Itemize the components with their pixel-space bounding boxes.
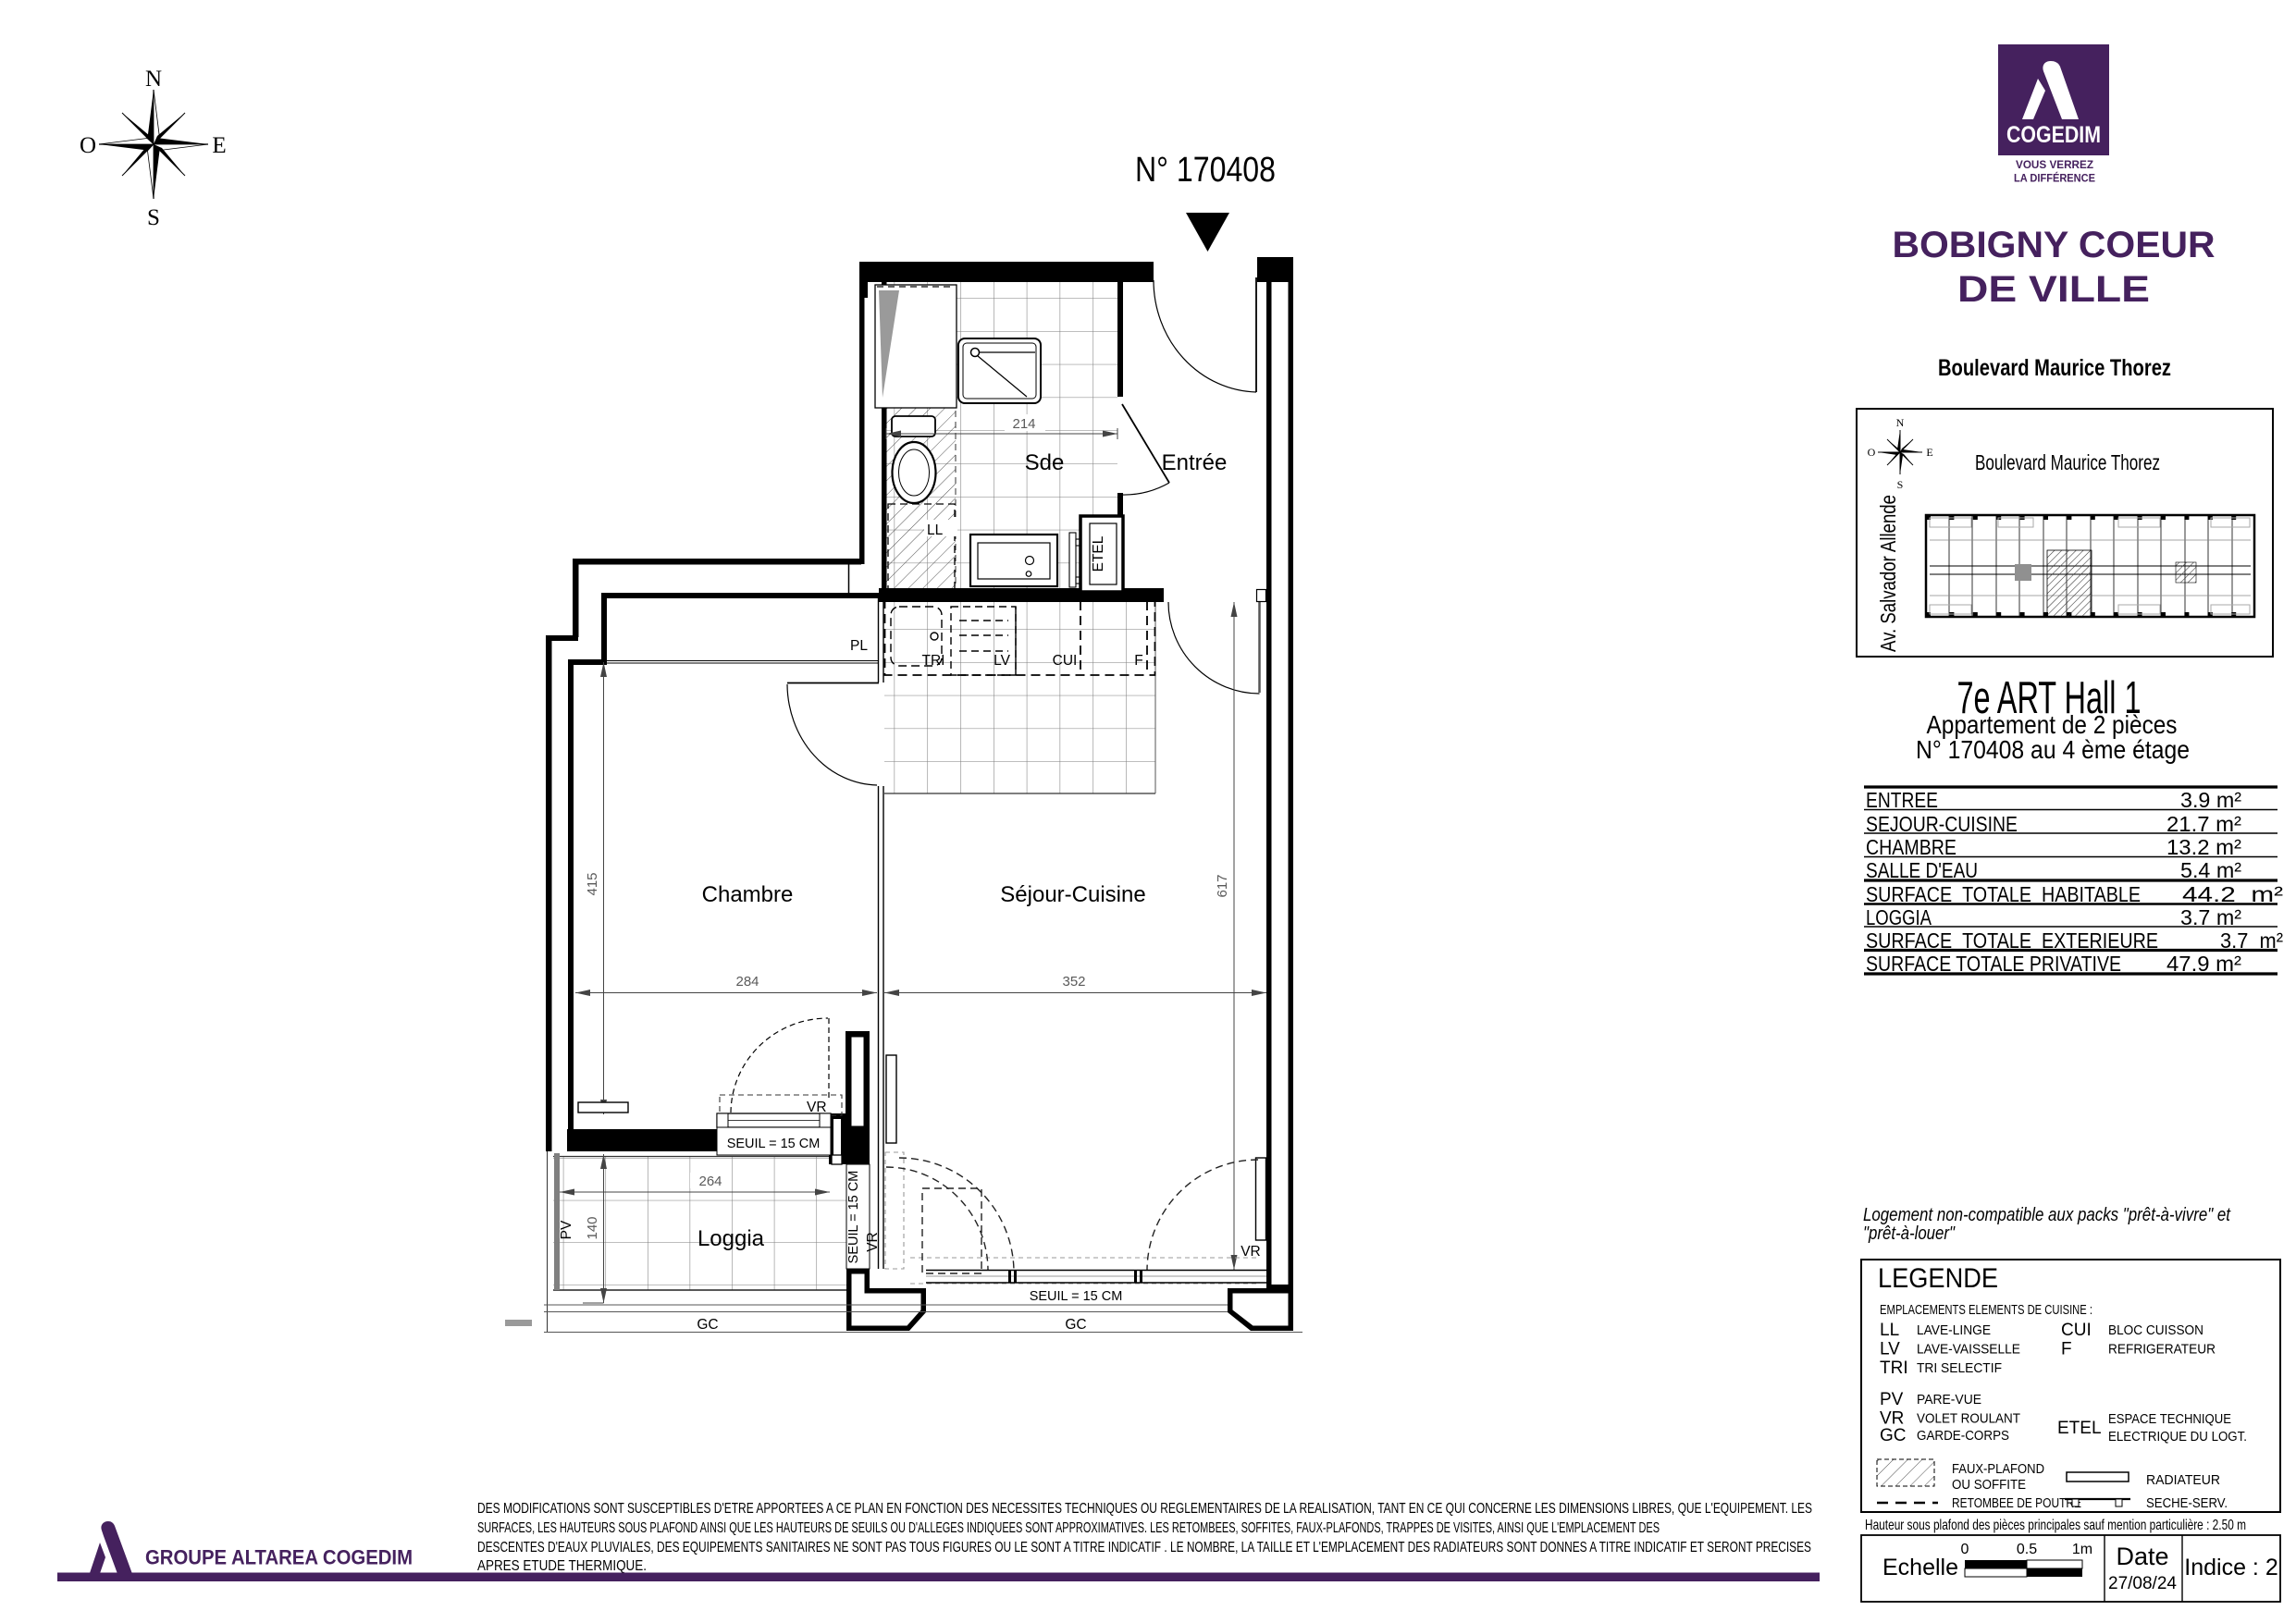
- svg-text:F: F: [2061, 1340, 2072, 1359]
- svg-text:27/08/24: 27/08/24: [2108, 1574, 2177, 1593]
- svg-text:LV: LV: [994, 653, 1010, 669]
- svg-text:EMPLACEMENTS ELEMENTS DE CUISI: EMPLACEMENTS ELEMENTS DE CUISINE :: [1880, 1302, 2092, 1318]
- svg-text:Date: Date: [2116, 1543, 2168, 1570]
- svg-text:Boulevard Maurice Thorez: Boulevard Maurice Thorez: [1938, 355, 2171, 381]
- svg-text:Indice : 2: Indice : 2: [2184, 1555, 2277, 1580]
- svg-text:VOLET ROULANT: VOLET ROULANT: [1917, 1412, 2020, 1427]
- svg-text:S: S: [1897, 478, 1904, 491]
- svg-text:LEGENDE: LEGENDE: [1878, 1263, 1998, 1294]
- svg-text:VOUS VERREZ: VOUS VERREZ: [2016, 160, 2093, 171]
- svg-text:REFRIGERATEUR: REFRIGERATEUR: [2108, 1343, 2216, 1358]
- svg-text:21.7 m²: 21.7 m²: [2166, 812, 2241, 836]
- svg-text:LL: LL: [927, 523, 944, 538]
- svg-text:OU SOFFITE: OU SOFFITE: [1952, 1478, 2026, 1493]
- svg-text:PV: PV: [559, 1220, 574, 1239]
- svg-text:Chambre: Chambre: [702, 882, 794, 907]
- svg-text:RETOMBEE DE POUTRE: RETOMBEE DE POUTRE: [1952, 1496, 2081, 1511]
- svg-text:GC: GC: [1065, 1317, 1086, 1333]
- svg-text:13.2 m²: 13.2 m²: [2166, 835, 2241, 859]
- svg-text:S: S: [147, 205, 160, 230]
- svg-text:DE VILLE: DE VILLE: [1957, 269, 2150, 310]
- svg-text:GC: GC: [1880, 1426, 1907, 1445]
- svg-text:LAVE-LINGE: LAVE-LINGE: [1917, 1323, 1991, 1338]
- svg-text:214: 214: [1012, 416, 1035, 432]
- svg-text:COGEDIM: COGEDIM: [2006, 122, 2101, 148]
- svg-text:ETEL: ETEL: [2057, 1419, 2102, 1438]
- svg-text:ENTREE: ENTREE: [1866, 788, 1938, 812]
- svg-text:F: F: [1134, 653, 1142, 669]
- svg-text:SURFACE TOTALE EXTERIEURE: SURFACE TOTALE EXTERIEURE: [1866, 928, 2158, 953]
- svg-text:264: 264: [698, 1174, 722, 1189]
- svg-text:TRI: TRI: [922, 653, 945, 669]
- svg-text:ETEL: ETEL: [1091, 535, 1106, 572]
- svg-text:Séjour-Cuisine: Séjour-Cuisine: [1000, 882, 1145, 907]
- svg-text:SECHE-SERV.: SECHE-SERV.: [2146, 1496, 2228, 1511]
- svg-text:Logement non-compatible aux pa: Logement non-compatible aux packs "prêt-…: [1863, 1205, 2231, 1225]
- svg-text:Boulevard Maurice Thorez: Boulevard Maurice Thorez: [1975, 450, 2160, 474]
- svg-text:SALLE D'EAU: SALLE D'EAU: [1866, 858, 1978, 882]
- svg-text:1m: 1m: [2072, 1542, 2092, 1557]
- svg-text:E: E: [212, 133, 226, 158]
- svg-text:O: O: [1868, 446, 1876, 459]
- svg-text:3.9 m²: 3.9 m²: [2180, 788, 2241, 812]
- svg-text:SURFACE TOTALE PRIVATIVE: SURFACE TOTALE PRIVATIVE: [1866, 952, 2121, 976]
- svg-text:LAVE-VAISSELLE: LAVE-VAISSELLE: [1917, 1343, 2020, 1358]
- svg-text:0.5: 0.5: [2017, 1542, 2037, 1557]
- svg-text:PL: PL: [850, 638, 868, 654]
- svg-text:Echelle: Echelle: [1882, 1555, 1958, 1580]
- svg-text:Loggia: Loggia: [697, 1226, 765, 1251]
- svg-text:CUI: CUI: [1053, 653, 1078, 669]
- svg-text:GROUPE ALTAREA COGEDIM: GROUPE ALTAREA COGEDIM: [145, 1546, 413, 1569]
- svg-text:N° 170408 au 4 ème étage: N° 170408 au 4 ème étage: [1916, 735, 2190, 764]
- svg-text:FAUX-PLAFOND: FAUX-PLAFOND: [1952, 1462, 2044, 1477]
- svg-text:5.4 m²: 5.4 m²: [2180, 858, 2241, 882]
- svg-text:140: 140: [585, 1216, 600, 1239]
- svg-text:E: E: [1926, 446, 1932, 459]
- svg-text:"prêt-à-louer": "prêt-à-louer": [1863, 1223, 1956, 1244]
- svg-text:GARDE-CORPS: GARDE-CORPS: [1917, 1429, 2009, 1444]
- svg-text:TRI: TRI: [1880, 1359, 1908, 1378]
- svg-text:352: 352: [1062, 974, 1085, 990]
- svg-text:GC: GC: [697, 1317, 718, 1333]
- svg-text:N: N: [1896, 416, 1905, 429]
- svg-text:3.7 m²: 3.7 m²: [2180, 905, 2241, 929]
- svg-text:LOGGIA: LOGGIA: [1866, 905, 1932, 929]
- svg-text:47.9 m²: 47.9 m²: [2166, 952, 2241, 976]
- svg-text:CUI: CUI: [2061, 1321, 2092, 1340]
- svg-text:RADIATEUR: RADIATEUR: [2146, 1473, 2220, 1488]
- svg-text:APRES ETUDE THERMIQUE.: APRES ETUDE THERMIQUE.: [477, 1558, 647, 1574]
- svg-text:VR: VR: [865, 1232, 881, 1252]
- svg-text:LV: LV: [1880, 1340, 1900, 1359]
- svg-text:3.7 m²: 3.7 m²: [2220, 928, 2283, 953]
- svg-text:PARE-VUE: PARE-VUE: [1917, 1393, 1981, 1408]
- svg-text:ELECTRIQUE DU LOGT.: ELECTRIQUE DU LOGT.: [2108, 1430, 2247, 1445]
- svg-text:Entrée: Entrée: [1162, 450, 1228, 475]
- svg-text:DESCENTES D'EAUX PLUVIALES, DE: DESCENTES D'EAUX PLUVIALES, DES EQUIPEME…: [477, 1540, 1811, 1555]
- svg-text:44.2 m²: 44.2 m²: [2182, 882, 2283, 906]
- svg-text:BOBIGNY COEUR: BOBIGNY COEUR: [1893, 225, 2216, 265]
- svg-text:VR: VR: [1241, 1244, 1261, 1260]
- svg-text:Hauteur sous plafond des pièce: Hauteur sous plafond des pièces principa…: [1865, 1518, 2246, 1533]
- svg-text:SEUIL = 15 CM: SEUIL = 15 CM: [727, 1137, 821, 1151]
- svg-text:LL: LL: [1880, 1321, 1899, 1340]
- svg-text:DES MODIFICATIONS SONT SUSCEPT: DES MODIFICATIONS SONT SUSCEPTIBLES D'ET…: [477, 1501, 1812, 1517]
- svg-text:284: 284: [735, 974, 759, 990]
- svg-text:TRI SELECTIF: TRI SELECTIF: [1917, 1361, 2002, 1376]
- svg-text:N° 170408: N° 170408: [1135, 151, 1276, 190]
- svg-text:LA DIFFÉRENCE: LA DIFFÉRENCE: [2014, 173, 2095, 185]
- svg-text:N: N: [145, 67, 162, 92]
- svg-text:617: 617: [1215, 874, 1230, 897]
- svg-text:Av. Salvador Allende: Av. Salvador Allende: [1876, 495, 1900, 652]
- svg-text:O: O: [80, 133, 96, 158]
- svg-text:SEUIL = 15 CM: SEUIL = 15 CM: [846, 1171, 861, 1264]
- svg-text:CHAMBRE: CHAMBRE: [1866, 835, 1957, 859]
- svg-text:SURFACE TOTALE HABITABLE: SURFACE TOTALE HABITABLE: [1866, 882, 2141, 906]
- svg-text:SEJOUR-CUISINE: SEJOUR-CUISINE: [1866, 812, 2018, 836]
- svg-text:PV: PV: [1880, 1390, 1904, 1409]
- svg-text:ESPACE TECHNIQUE: ESPACE TECHNIQUE: [2108, 1412, 2231, 1427]
- svg-text:Sde: Sde: [1025, 450, 1065, 475]
- svg-text:0: 0: [1961, 1542, 1969, 1557]
- svg-text:415: 415: [585, 872, 600, 895]
- svg-text:BLOC CUISSON: BLOC CUISSON: [2108, 1323, 2203, 1338]
- svg-text:SEUIL = 15 CM: SEUIL = 15 CM: [1030, 1289, 1123, 1304]
- svg-text:SURFACES, LES HAUTEURS SOUS PL: SURFACES, LES HAUTEURS SOUS PLAFOND AINS…: [477, 1520, 1660, 1536]
